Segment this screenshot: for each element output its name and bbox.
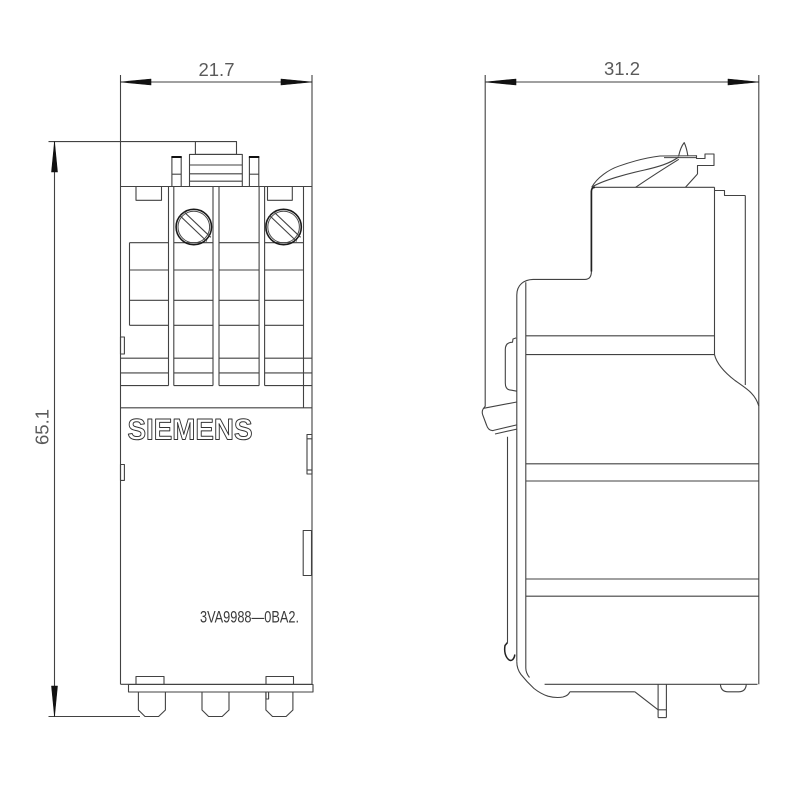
svg-text:65.1: 65.1 xyxy=(32,409,53,445)
svg-text:31.2: 31.2 xyxy=(604,58,640,79)
svg-text:SIEMENS: SIEMENS xyxy=(128,414,253,447)
svg-text:3VA9988—0BA2.: 3VA9988—0BA2. xyxy=(200,609,299,627)
svg-text:21.7: 21.7 xyxy=(198,59,234,80)
